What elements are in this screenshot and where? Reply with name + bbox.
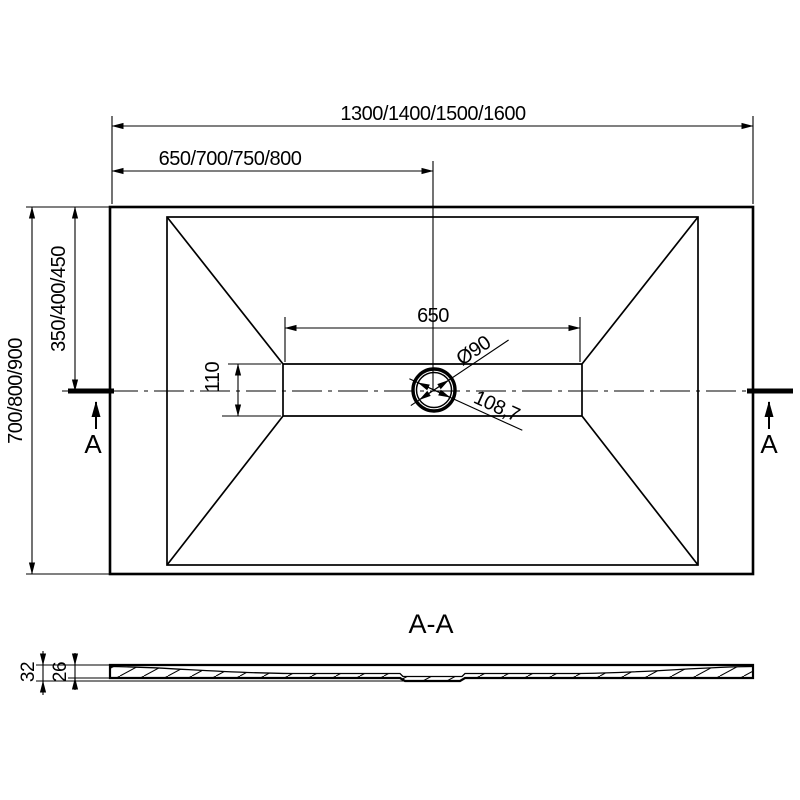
dim-channel-width-label: 110 — [202, 361, 224, 392]
dim-overall-width-label: 700/800/900 — [5, 338, 27, 444]
dim-total-thickness-label: 32 — [18, 662, 39, 682]
dim-half-length-label: 650/700/750/800 — [159, 148, 302, 170]
top-view: 1300/1400/1500/1600 650/700/750/800 700/… — [5, 103, 796, 574]
section-marker-a-left: A — [84, 429, 102, 459]
section-view: A-A 32 26 — [18, 609, 753, 695]
drain-diagonal-label: 108,7 — [470, 387, 523, 427]
dim-overall-length-label: 1300/1400/1500/1600 — [340, 103, 526, 125]
extension-lines — [26, 116, 753, 574]
dim-channel-length-label: 650 — [417, 305, 449, 327]
section-title: A-A — [408, 609, 453, 639]
dim-half-width-label: 350/400/450 — [48, 246, 70, 352]
drain-diagonal-arrows — [418, 383, 450, 398]
drawing-page: 1300/1400/1500/1600 650/700/750/800 700/… — [0, 0, 800, 800]
dim-edge-thickness-label: 26 — [50, 662, 71, 682]
technical-drawing: 1300/1400/1500/1600 650/700/750/800 700/… — [0, 0, 800, 800]
section-marker-a-right: A — [760, 429, 778, 459]
